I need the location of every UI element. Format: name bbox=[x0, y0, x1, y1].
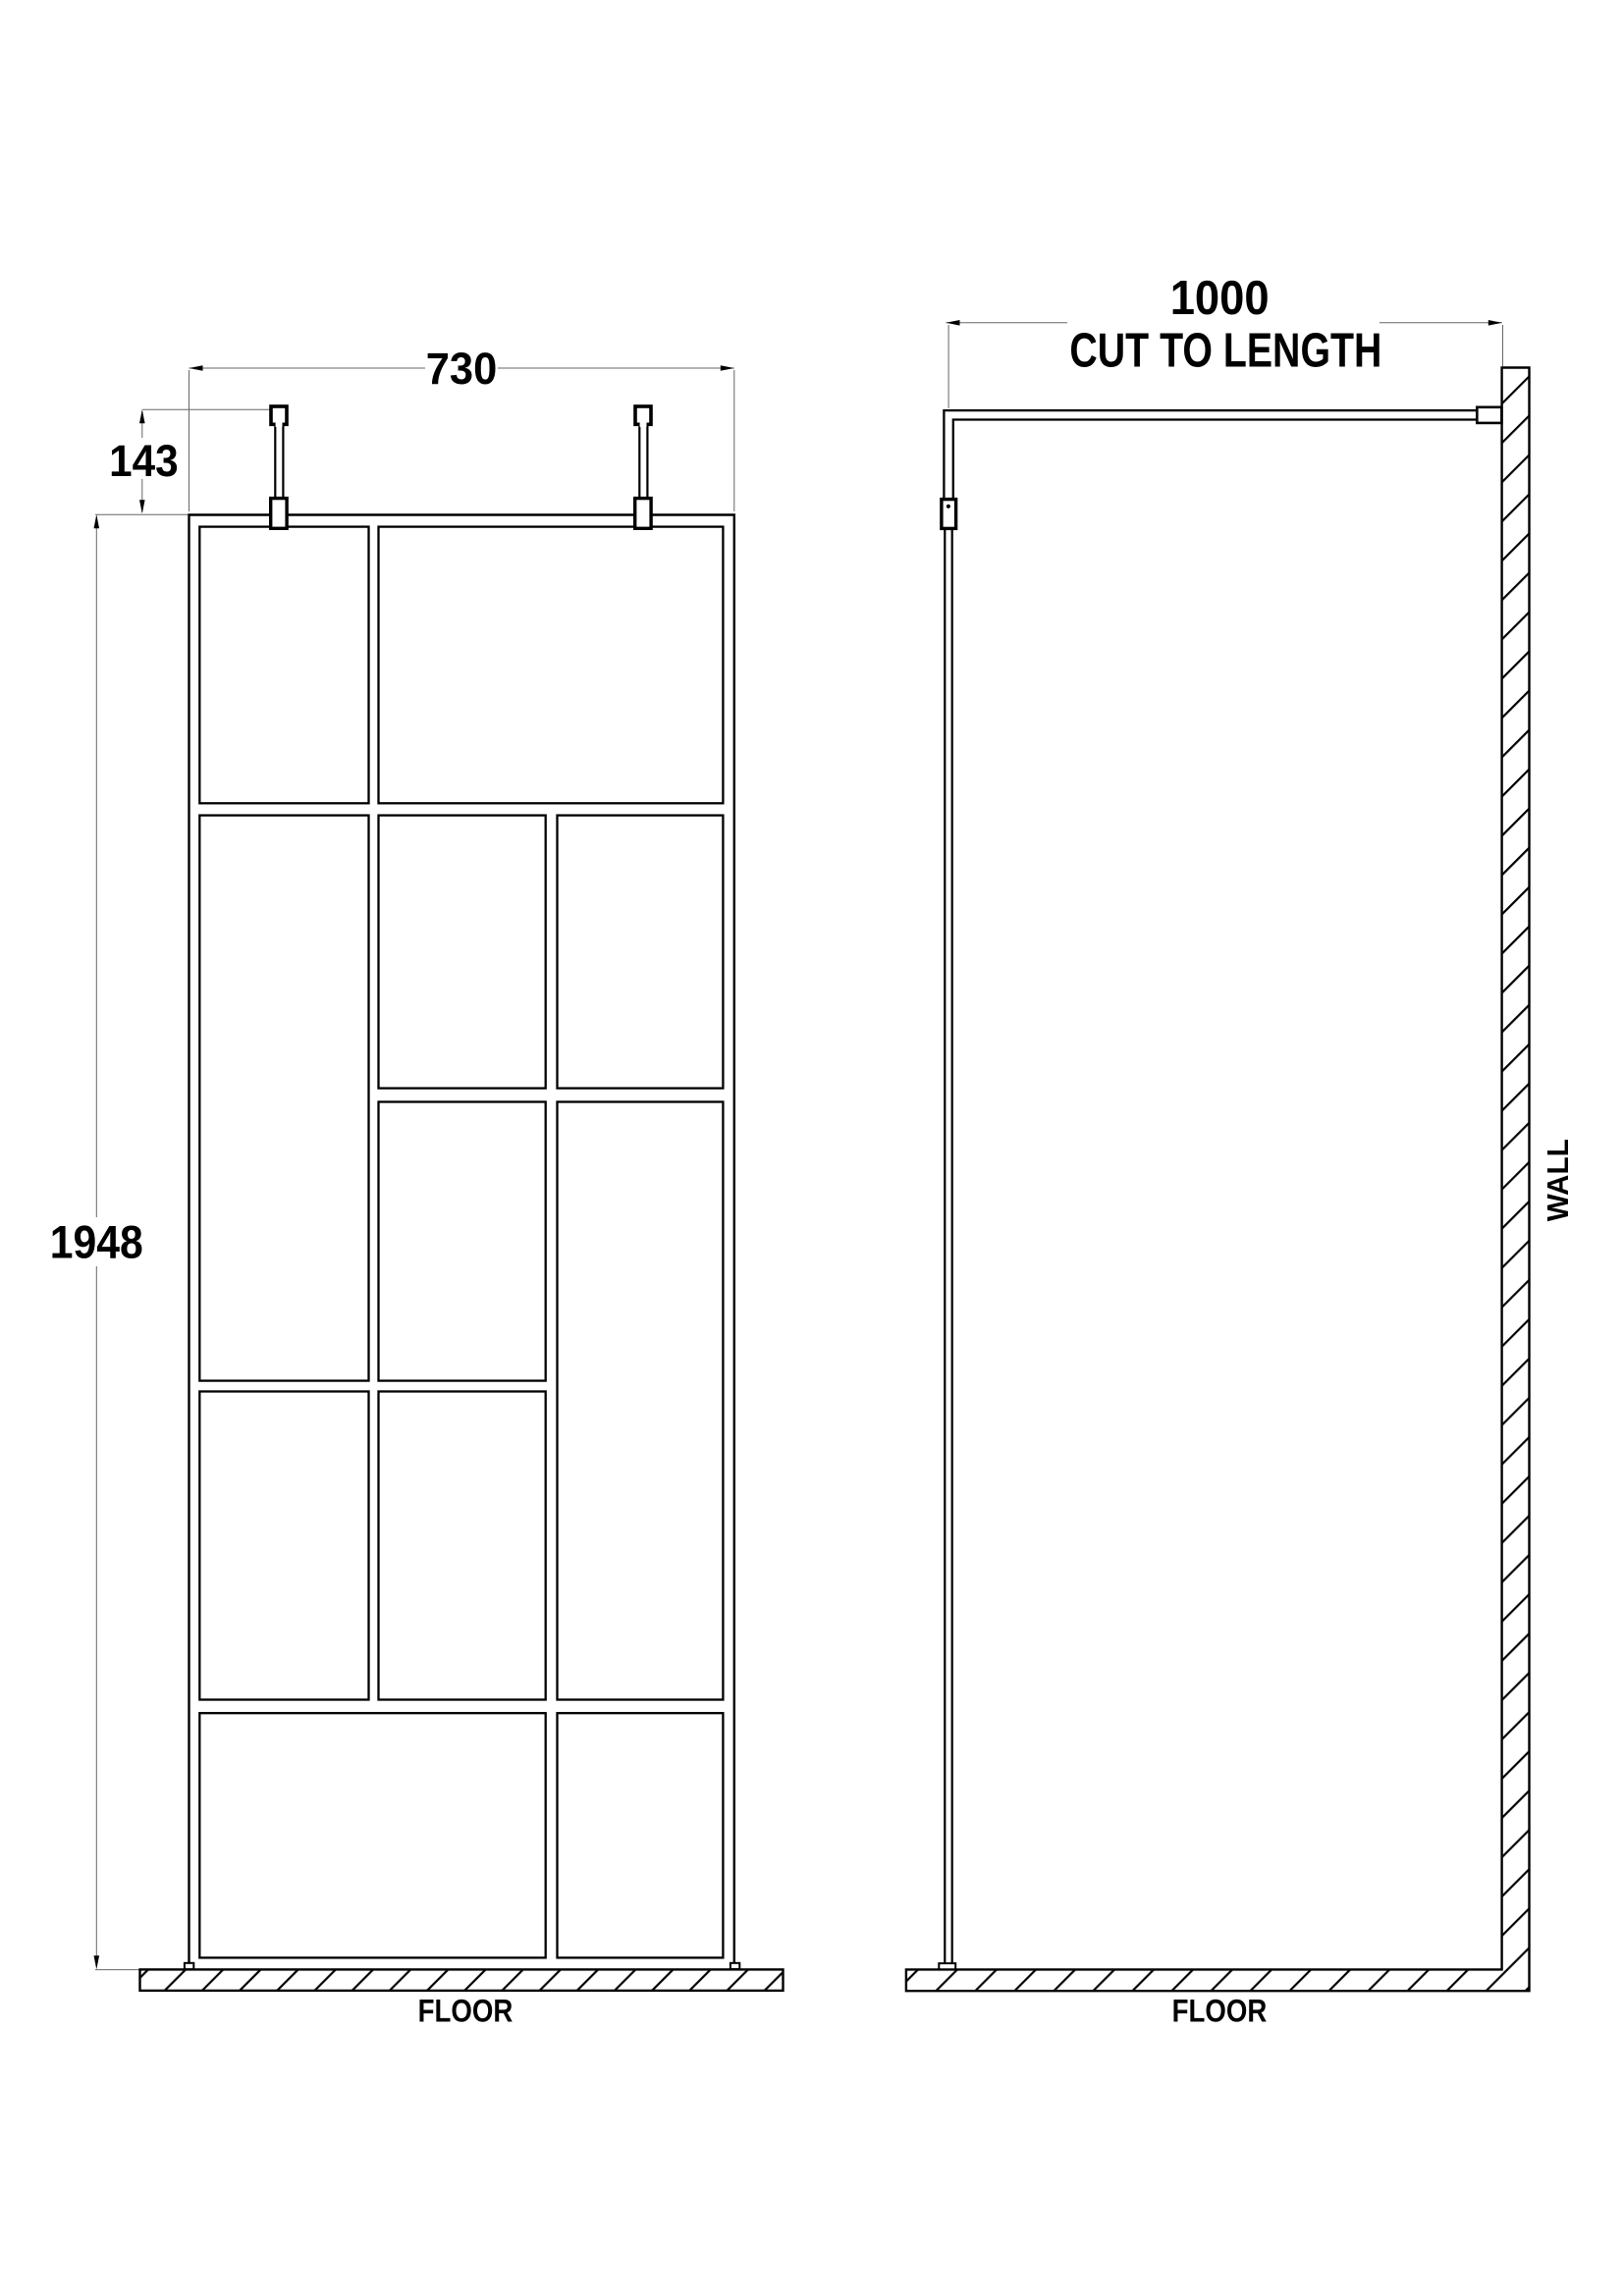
svg-text:1000: 1000 bbox=[1170, 272, 1270, 325]
svg-text:WALL: WALL bbox=[1541, 1139, 1575, 1221]
svg-text:143: 143 bbox=[109, 436, 179, 486]
svg-text:FLOOR: FLOOR bbox=[418, 1993, 514, 2028]
svg-text:730: 730 bbox=[426, 344, 498, 394]
svg-text:FLOOR: FLOOR bbox=[1172, 1993, 1268, 2028]
svg-text:CUT TO LENGTH: CUT TO LENGTH bbox=[1069, 325, 1381, 378]
svg-text:1948: 1948 bbox=[50, 1216, 143, 1268]
